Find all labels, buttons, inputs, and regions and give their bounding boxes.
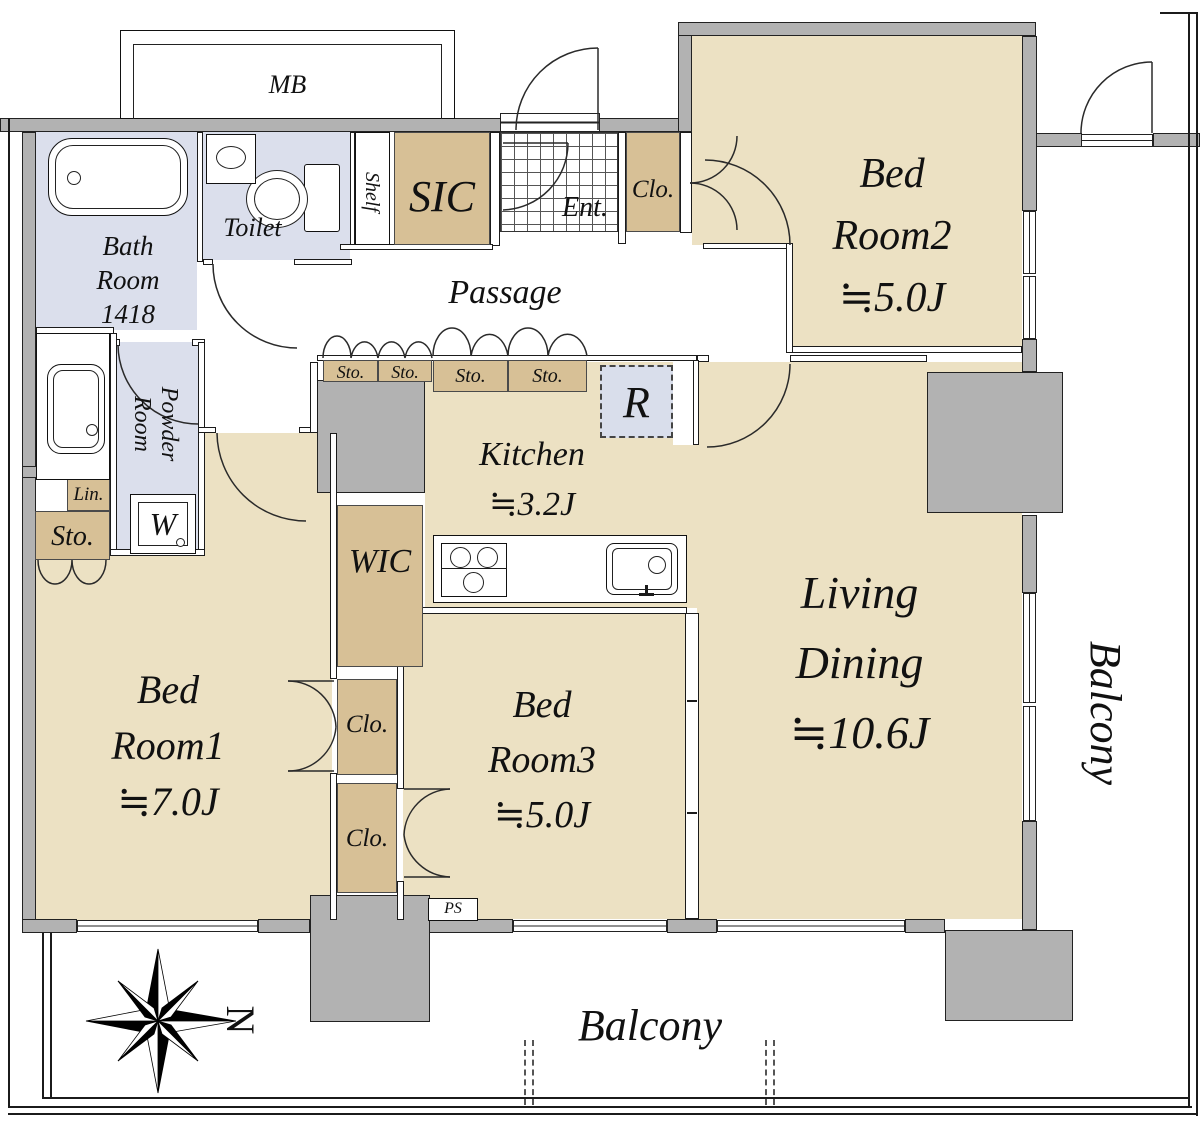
pipe-shaft-label: PS — [428, 899, 478, 919]
shelf-label: Shelf — [358, 152, 386, 232]
wall-bottom-4 — [667, 919, 717, 933]
window-living-south — [717, 920, 905, 932]
kitchen-area-label: ≒3.2J — [419, 486, 645, 524]
wall-bedroom2-left-riser — [678, 22, 692, 132]
kitchen-label: Kitchen — [419, 434, 645, 476]
wall-bottom-3 — [428, 919, 513, 933]
window-bedroom1-south — [77, 920, 258, 932]
wall-hall-right — [310, 362, 318, 433]
wic-box — [337, 505, 423, 667]
wic-label: WIC — [337, 540, 423, 584]
compass-rose — [86, 949, 236, 1093]
window-living-east-1 — [1023, 593, 1036, 703]
storage-passage-4-label: Sto. — [508, 364, 587, 388]
balcony-divider-2b — [773, 1040, 775, 1105]
bedroom2-label: Bed Room2 ≒5.0J — [757, 136, 1027, 336]
powder-room-label: Powder Room — [127, 349, 185, 499]
wall-bedroom3-left-lower — [397, 881, 404, 920]
outline-top-stub — [1160, 12, 1198, 14]
bedroom1-label: Bed Room1 ≒7.0J — [40, 662, 296, 830]
wall-living-top-b — [790, 355, 927, 362]
outline-right-2 — [1196, 12, 1198, 1116]
passage-label: Passage — [420, 272, 590, 314]
frame-sic-ent — [490, 132, 500, 246]
stove-burner-2 — [477, 547, 498, 568]
closet-bedroom1-label: Clo. — [335, 710, 399, 738]
wall-bedroom1-right-upper — [330, 433, 337, 679]
pillar-east-mid — [927, 372, 1063, 513]
washing-machine-label: W — [132, 504, 194, 544]
closet-bedroom3-label: Clo. — [335, 824, 399, 852]
wall-exterior-topright-b — [1153, 133, 1200, 147]
toilet-door-arc — [213, 264, 297, 348]
wall-hall-bedroom1-a — [198, 427, 216, 433]
living-dining-label: Living Dining ≒10.6J — [712, 568, 1007, 758]
kitchen-faucet-stem-h — [639, 593, 654, 596]
pillar-south-east — [945, 930, 1073, 1021]
wall-kitchen-bedroom3 — [397, 607, 687, 614]
exterior-door-arc — [1081, 62, 1152, 133]
slider-bedroom3-living — [685, 613, 699, 919]
toilet-label: Toilet — [195, 213, 310, 243]
wall-vanity-powder — [110, 333, 117, 555]
wall-powder-right — [198, 342, 205, 555]
wall-toilet-bottom-b — [294, 259, 352, 265]
storage-passage-1-label: Sto. — [323, 362, 378, 382]
window-living-east-2 — [1023, 706, 1036, 821]
bathroom-label: Bath Room 1418 — [58, 226, 198, 334]
outline-right — [1188, 12, 1190, 1108]
stove-divider — [441, 568, 507, 569]
outline-bottom — [8, 1106, 1192, 1108]
vanity-sink-inner — [53, 370, 99, 448]
wall-bedroom2-right-lower — [1022, 339, 1037, 372]
bedroom3-label: Bed Room3 ≒5.0J — [412, 680, 672, 840]
wall-left — [22, 132, 36, 933]
sto3-bifold — [433, 328, 508, 356]
toilet-hand-basin-bowl — [216, 146, 246, 169]
refrigerator-label: R — [600, 372, 673, 434]
balcony-divider-1b — [532, 1040, 534, 1105]
wall-living-right-upper — [1022, 515, 1037, 593]
slider-tick-1 — [687, 700, 697, 702]
linen-label: Lin. — [67, 481, 110, 507]
wall-bottom-5 — [905, 919, 945, 933]
sto4-bifold — [508, 328, 587, 356]
wall-bottom-1 — [22, 919, 77, 933]
closet-top-label: Clo. — [622, 174, 684, 204]
window-bedroom3-south — [513, 920, 667, 932]
balcony-divider-1a — [524, 1040, 526, 1105]
wall-living-right-lower — [1022, 821, 1037, 930]
wall-exterior-topright-a — [1036, 133, 1082, 147]
balcony-inner-line — [42, 1097, 1190, 1099]
wall-bedroom2-top — [678, 22, 1036, 36]
storage-passage-3-label: Sto. — [433, 364, 508, 388]
slider-tick-2 — [687, 812, 697, 814]
vanity-drain — [86, 424, 98, 436]
wall-kitchen-east-stub — [693, 360, 699, 445]
wall-top-left — [0, 118, 502, 132]
kitchen-niche — [673, 362, 693, 445]
outline-bottom-2 — [8, 1113, 1198, 1115]
balcony-left-line-a — [42, 933, 44, 1099]
kitchen-faucet — [648, 556, 666, 574]
meter-box-label: MB — [120, 70, 455, 100]
entrance-door-sill — [500, 113, 600, 132]
balcony-divider-2a — [765, 1040, 767, 1105]
outline-left — [8, 118, 10, 1108]
pillar-south-west — [310, 895, 430, 1022]
wall-bedroom2-bottom — [792, 346, 1022, 353]
bathtub-drain — [67, 171, 81, 185]
wall-bottom-2 — [258, 919, 310, 933]
floor-plan: MB Bath Room 1418 Toilet Shelf SIC Ent. … — [0, 0, 1200, 1121]
wall-toilet-bottom-a — [203, 259, 213, 265]
storage-passage-2-label: Sto. — [378, 362, 432, 382]
stove-burner-3 — [463, 572, 484, 593]
balcony-left-line-b — [50, 933, 52, 1099]
exterior-door-sill — [1081, 134, 1153, 147]
sic-label: SIC — [394, 172, 490, 222]
balcony-right-label: Balcony — [1079, 593, 1131, 833]
storage-left-label: Sto. — [35, 520, 110, 554]
stove-burner-1 — [450, 547, 471, 568]
compass-north-label: N — [216, 996, 264, 1044]
balcony-bottom-label: Balcony — [540, 1000, 760, 1052]
